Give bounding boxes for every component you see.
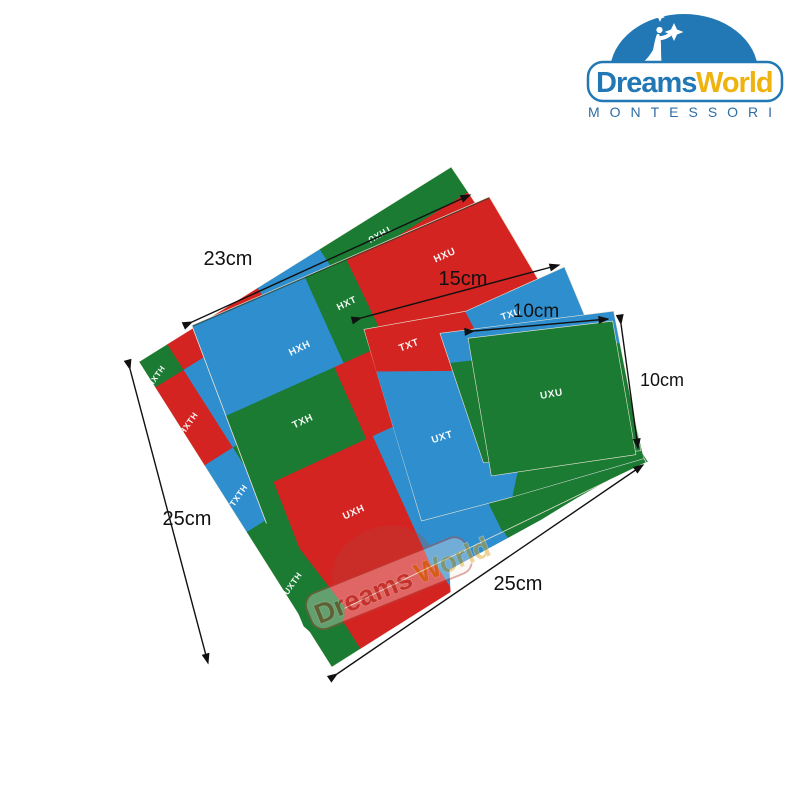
svg-text:25cm: 25cm [494, 573, 543, 595]
svg-text:10cm: 10cm [513, 301, 559, 322]
svg-text:MONTESSORI: MONTESSORI [588, 104, 782, 120]
svg-text:25cm: 25cm [163, 508, 212, 530]
svg-text:23cm: 23cm [204, 248, 253, 270]
svg-text:15cm: 15cm [439, 268, 488, 290]
svg-text:Dreams: Dreams [596, 67, 696, 99]
svg-text:World: World [696, 67, 773, 99]
svg-text:10cm: 10cm [640, 370, 684, 390]
